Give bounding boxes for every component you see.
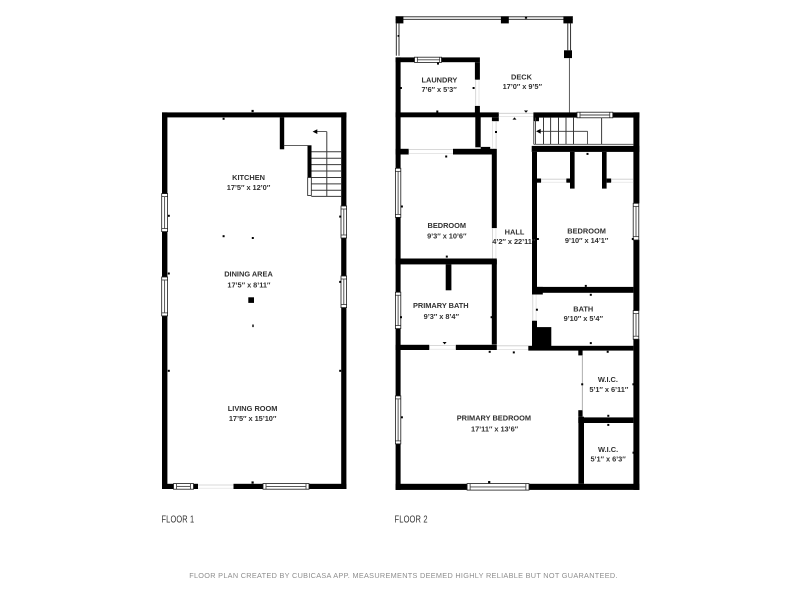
svg-text:DINING AREA: DINING AREA [224,269,273,278]
svg-text:7’6″ x 5’3″: 7’6″ x 5’3″ [421,85,457,94]
svg-text:HALL: HALL [505,228,525,237]
svg-text:PRIMARY BATH: PRIMARY BATH [413,301,469,310]
svg-text:FLOOR PLAN CREATED BY CUBICASA: FLOOR PLAN CREATED BY CUBICASA APP. MEAS… [189,571,618,580]
svg-text:9’10″ x 14’1″: 9’10″ x 14’1″ [565,236,609,245]
svg-text:BEDROOM: BEDROOM [567,226,606,235]
svg-text:5’1″ x 6’3″: 5’1″ x 6’3″ [590,455,626,464]
svg-text:LAUNDRY: LAUNDRY [421,75,457,84]
svg-text:17’5″ x 8’11″: 17’5″ x 8’11″ [227,281,271,290]
svg-text:DECK: DECK [511,73,533,82]
svg-text:KITCHEN: KITCHEN [232,173,265,182]
svg-text:4’2″ x 22’11″: 4’2″ x 22’11″ [492,237,536,246]
svg-text:17’11″ x 13’6″: 17’11″ x 13’6″ [471,424,519,433]
svg-text:9’3″ x 8’4″: 9’3″ x 8’4″ [424,312,460,321]
svg-text:FLOOR 2: FLOOR 2 [395,515,428,526]
svg-text:17’5″ x 12’0″: 17’5″ x 12’0″ [227,183,271,192]
svg-text:PRIMARY BEDROOM: PRIMARY BEDROOM [457,413,531,422]
svg-text:9’3″ x 10’6″: 9’3″ x 10’6″ [427,232,467,241]
svg-text:17’0″ x 9’5″: 17’0″ x 9’5″ [503,82,543,91]
svg-text:W.I.C.: W.I.C. [598,375,618,384]
svg-text:W.I.C.: W.I.C. [598,445,618,454]
svg-text:BEDROOM: BEDROOM [427,221,466,230]
svg-text:5’1″ x 6’11″: 5’1″ x 6’11″ [589,385,628,394]
svg-text:BATH: BATH [573,305,593,314]
svg-text:17’5″ x 15’10″: 17’5″ x 15’10″ [229,414,277,423]
svg-text:FLOOR 1: FLOOR 1 [162,515,195,526]
svg-text:9’10″ x 5’4″: 9’10″ x 5’4″ [564,314,604,323]
svg-text:LIVING ROOM: LIVING ROOM [228,404,278,413]
